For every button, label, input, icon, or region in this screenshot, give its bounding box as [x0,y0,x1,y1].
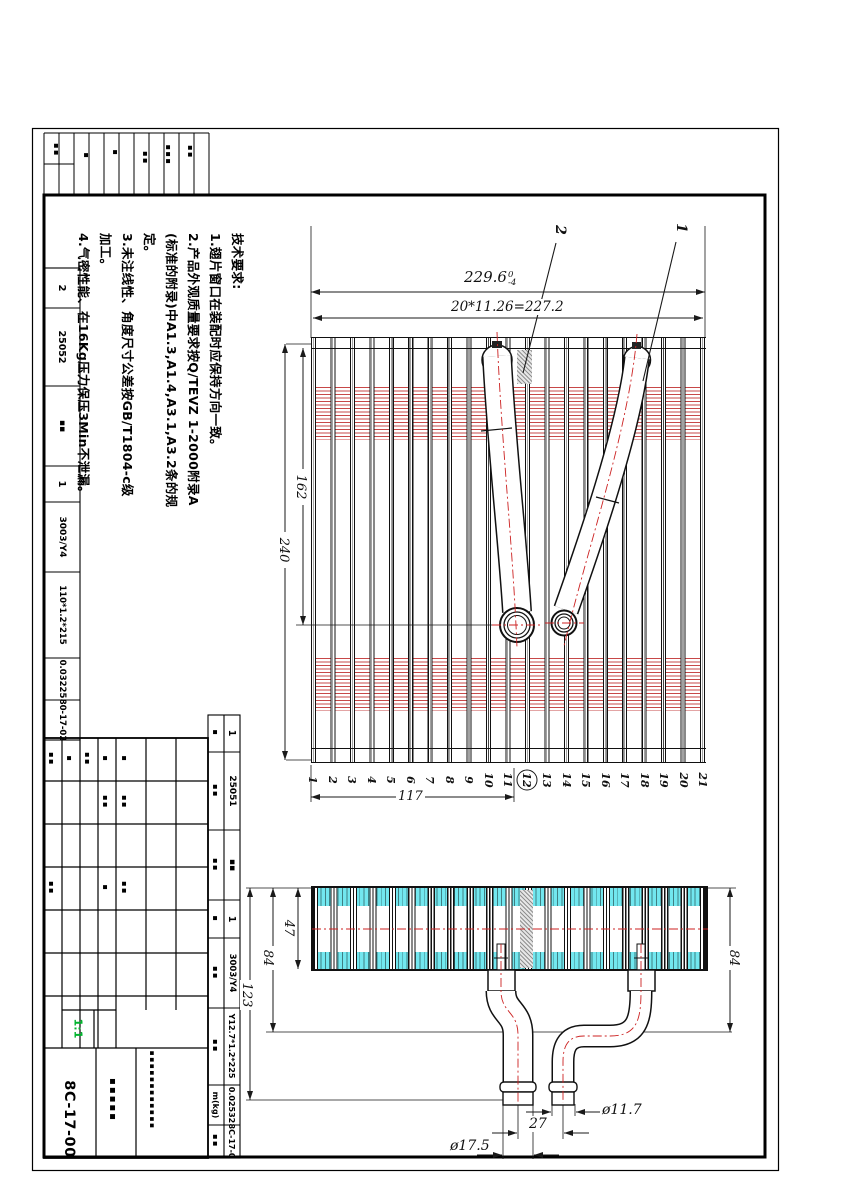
parts-cell: 25051 [225,771,239,811]
note-line: 1.翅片窗口在装配时应保持方向一致。 [204,233,226,653]
parts-cell: 80-17-02 [55,698,69,742]
parts-header-illegible: ▪▪ [209,1037,223,1055]
parts-cell: 25052 [55,325,69,369]
weight-label: m(kg) [209,1090,223,1120]
parts-cell: 110*1.2*215 [55,582,69,648]
dim-value: 229.6 [464,268,507,286]
parts-cell: 1 [225,914,239,924]
parts-cell: 1 [225,728,239,738]
note-line: (标准的附录)中A1.3,A1.4,A3.1,A3.2条的规 [160,233,182,653]
revision-cell-illegible: ▪ [81,147,93,165]
callout-1: 1 [673,221,689,235]
note-line: 加工。 [94,233,116,653]
signature-illegible: ▪▪ [46,879,58,897]
tolerance-lower: -4 [508,279,516,287]
part-name-illegible: ▪▪▪▪▪ [106,1070,120,1130]
signature-illegible: ▪ [64,750,76,768]
dim-240: 240 [277,532,291,568]
dim-dia-large: ø17.5 [448,1138,492,1154]
dim-overall-width: 229.60-4 [462,268,518,287]
tube-number-circled: 12 [521,771,533,789]
tube-number: 9 [463,771,475,789]
dim-162: 162 [294,469,308,505]
signature-illegible: ▪▪ [46,750,58,768]
tube-number: 6 [405,771,417,789]
note-line: 3.未注线性、角度尺寸公差按GB/T1804-c级 [116,233,138,653]
tube-number: 7 [424,771,436,789]
note-line: 4.气密性能、在16Kg压力保压3Min不泄漏。 [72,233,94,653]
signature-illegible: ▪ [100,750,112,768]
tube-number: 19 [658,771,670,789]
tube-number: 3 [346,771,358,789]
parts-header-illegible: ▪ [209,913,223,925]
dim-123: 123 [240,980,254,1010]
parts-cell: 3003/Y4 [55,515,69,559]
dim-84-left: 84 [261,946,275,970]
signature-illegible: ▪ [100,879,112,897]
tube-number: 17 [619,771,631,789]
parts-cell: 8C-17-0 [225,1122,239,1160]
signature-illegible: ▪▪ [119,879,131,897]
dim-pitch: 20*11.26=227.2 [449,299,566,315]
company-name-illegible: ▪▪▪▪▪▪▪▪▪▪▪▪ [147,1035,159,1145]
dim-dia-small: ø11.7 [600,1102,644,1118]
pipes-front-view [481,341,651,642]
scale-value: 1:1 [72,1016,85,1042]
parts-cell: 0.02532 [225,1087,239,1123]
signature-illegible: ▪▪ [100,793,112,811]
tube-number: 21 [697,771,709,789]
tube-number: 16 [600,771,612,789]
pipes-bottom-view [488,944,655,1105]
tube-number: 14 [561,771,573,789]
tube-number: 10 [483,771,495,789]
parts-cell: 2 [55,282,69,294]
parts-header-illegible: ▪▪ [209,856,223,874]
note-line: 2.产品外观质量要求按Q/TEVZ 1-2000附录A [182,233,204,653]
dim-27: 27 [527,1116,549,1132]
technical-notes: 技术要求: 1.翅片窗口在装配时应保持方向一致。 2.产品外观质量要求按Q/TE… [64,233,248,653]
notes-heading: 技术要求: [226,233,248,653]
tube-number: 18 [639,771,651,789]
drawing-sheet: 技术要求: 1.翅片窗口在装配时应保持方向一致。 2.产品外观质量要求按Q/TE… [0,0,848,1200]
revision-cell-illegible: ▪▪ [140,149,152,167]
tube-number: 2 [327,771,339,789]
tube-number: 15 [580,771,592,789]
parts-header-illegible: ▪▪ [209,782,223,800]
parts-cell: 0.03225 [55,659,69,699]
revision-cell-illegible: ▪▪ [51,141,63,159]
parts-cell: 1 [55,479,69,489]
parts-cell: Y12.7*1.2*225 [225,1015,239,1077]
parts-header-illegible: ▪▪ [209,964,223,982]
dim-117: 117 [396,789,425,804]
parts-cell-illegible: ▪▪ [55,416,69,436]
revision-cell-illegible: ▪▪▪ [163,146,175,164]
parts-header-illegible: ▪ [209,727,223,739]
tube-number: 4 [366,771,378,789]
signature-illegible: ▪▪ [119,793,131,811]
parts-cell: 3003/Y4 [225,953,239,993]
callout-2: 2 [552,223,568,237]
tube-number: 11 [502,771,514,789]
signature-illegible: ▪ [119,750,131,768]
tube-number: 8 [444,771,456,789]
dim-84-right: 84 [727,946,741,970]
drawing-number: 8C-17-00 [61,1078,77,1160]
parts-header-illegible: ▪▪ [209,1132,223,1150]
tube-number: 5 [385,771,397,789]
revision-cell-illegible: ▪▪ [185,143,197,161]
tube-number: 13 [541,771,553,789]
tube-number: 20 [678,771,690,789]
tube-number: 1 [307,771,319,789]
revision-cell-illegible: ▪ [110,144,122,162]
dim-47: 47 [282,916,296,940]
signature-illegible: ▪▪ [82,750,94,768]
note-line: 定。 [138,233,160,653]
parts-cell-illegible: ▪▪ [225,856,239,874]
